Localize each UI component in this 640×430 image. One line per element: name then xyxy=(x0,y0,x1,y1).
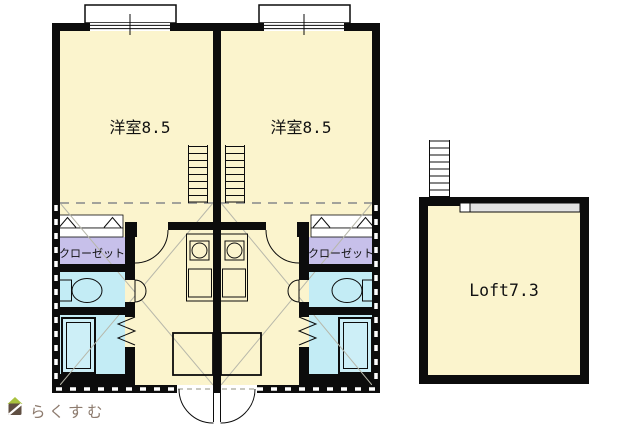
loft-railing-notch xyxy=(460,203,470,212)
watermark: らくすむ xyxy=(8,397,107,421)
front-door-arc-left xyxy=(179,389,214,423)
bathtub-icon-left xyxy=(62,318,95,373)
closet-label-right: クローゼット xyxy=(308,247,374,260)
toilet-room-left xyxy=(60,272,125,308)
brand-label: らくすむ xyxy=(30,403,106,421)
loft-railing xyxy=(460,203,580,212)
front-door-arc-right xyxy=(221,389,256,423)
loft-ladder-icon xyxy=(429,140,450,198)
folding-door-right xyxy=(311,215,377,237)
party-wall xyxy=(213,23,221,393)
floorplan-canvas: 洋室8.5 洋室8.5 クローゼット クローゼット Loft7.3 らくすむ xyxy=(0,0,640,425)
loft-block xyxy=(419,140,589,384)
entrance-doors xyxy=(178,389,256,423)
room-label-right: 洋室8.5 xyxy=(271,118,332,137)
window-left xyxy=(85,5,176,35)
toilet-room-right xyxy=(309,272,374,308)
closet-label-left: クローゼット xyxy=(59,247,125,260)
loft-label: Loft7.3 xyxy=(469,281,539,300)
room-label-left: 洋室8.5 xyxy=(110,118,171,137)
house-logo-icon xyxy=(8,397,23,415)
window-right xyxy=(259,5,350,35)
bath-wall-right xyxy=(307,374,377,386)
folding-door-left xyxy=(57,215,123,237)
